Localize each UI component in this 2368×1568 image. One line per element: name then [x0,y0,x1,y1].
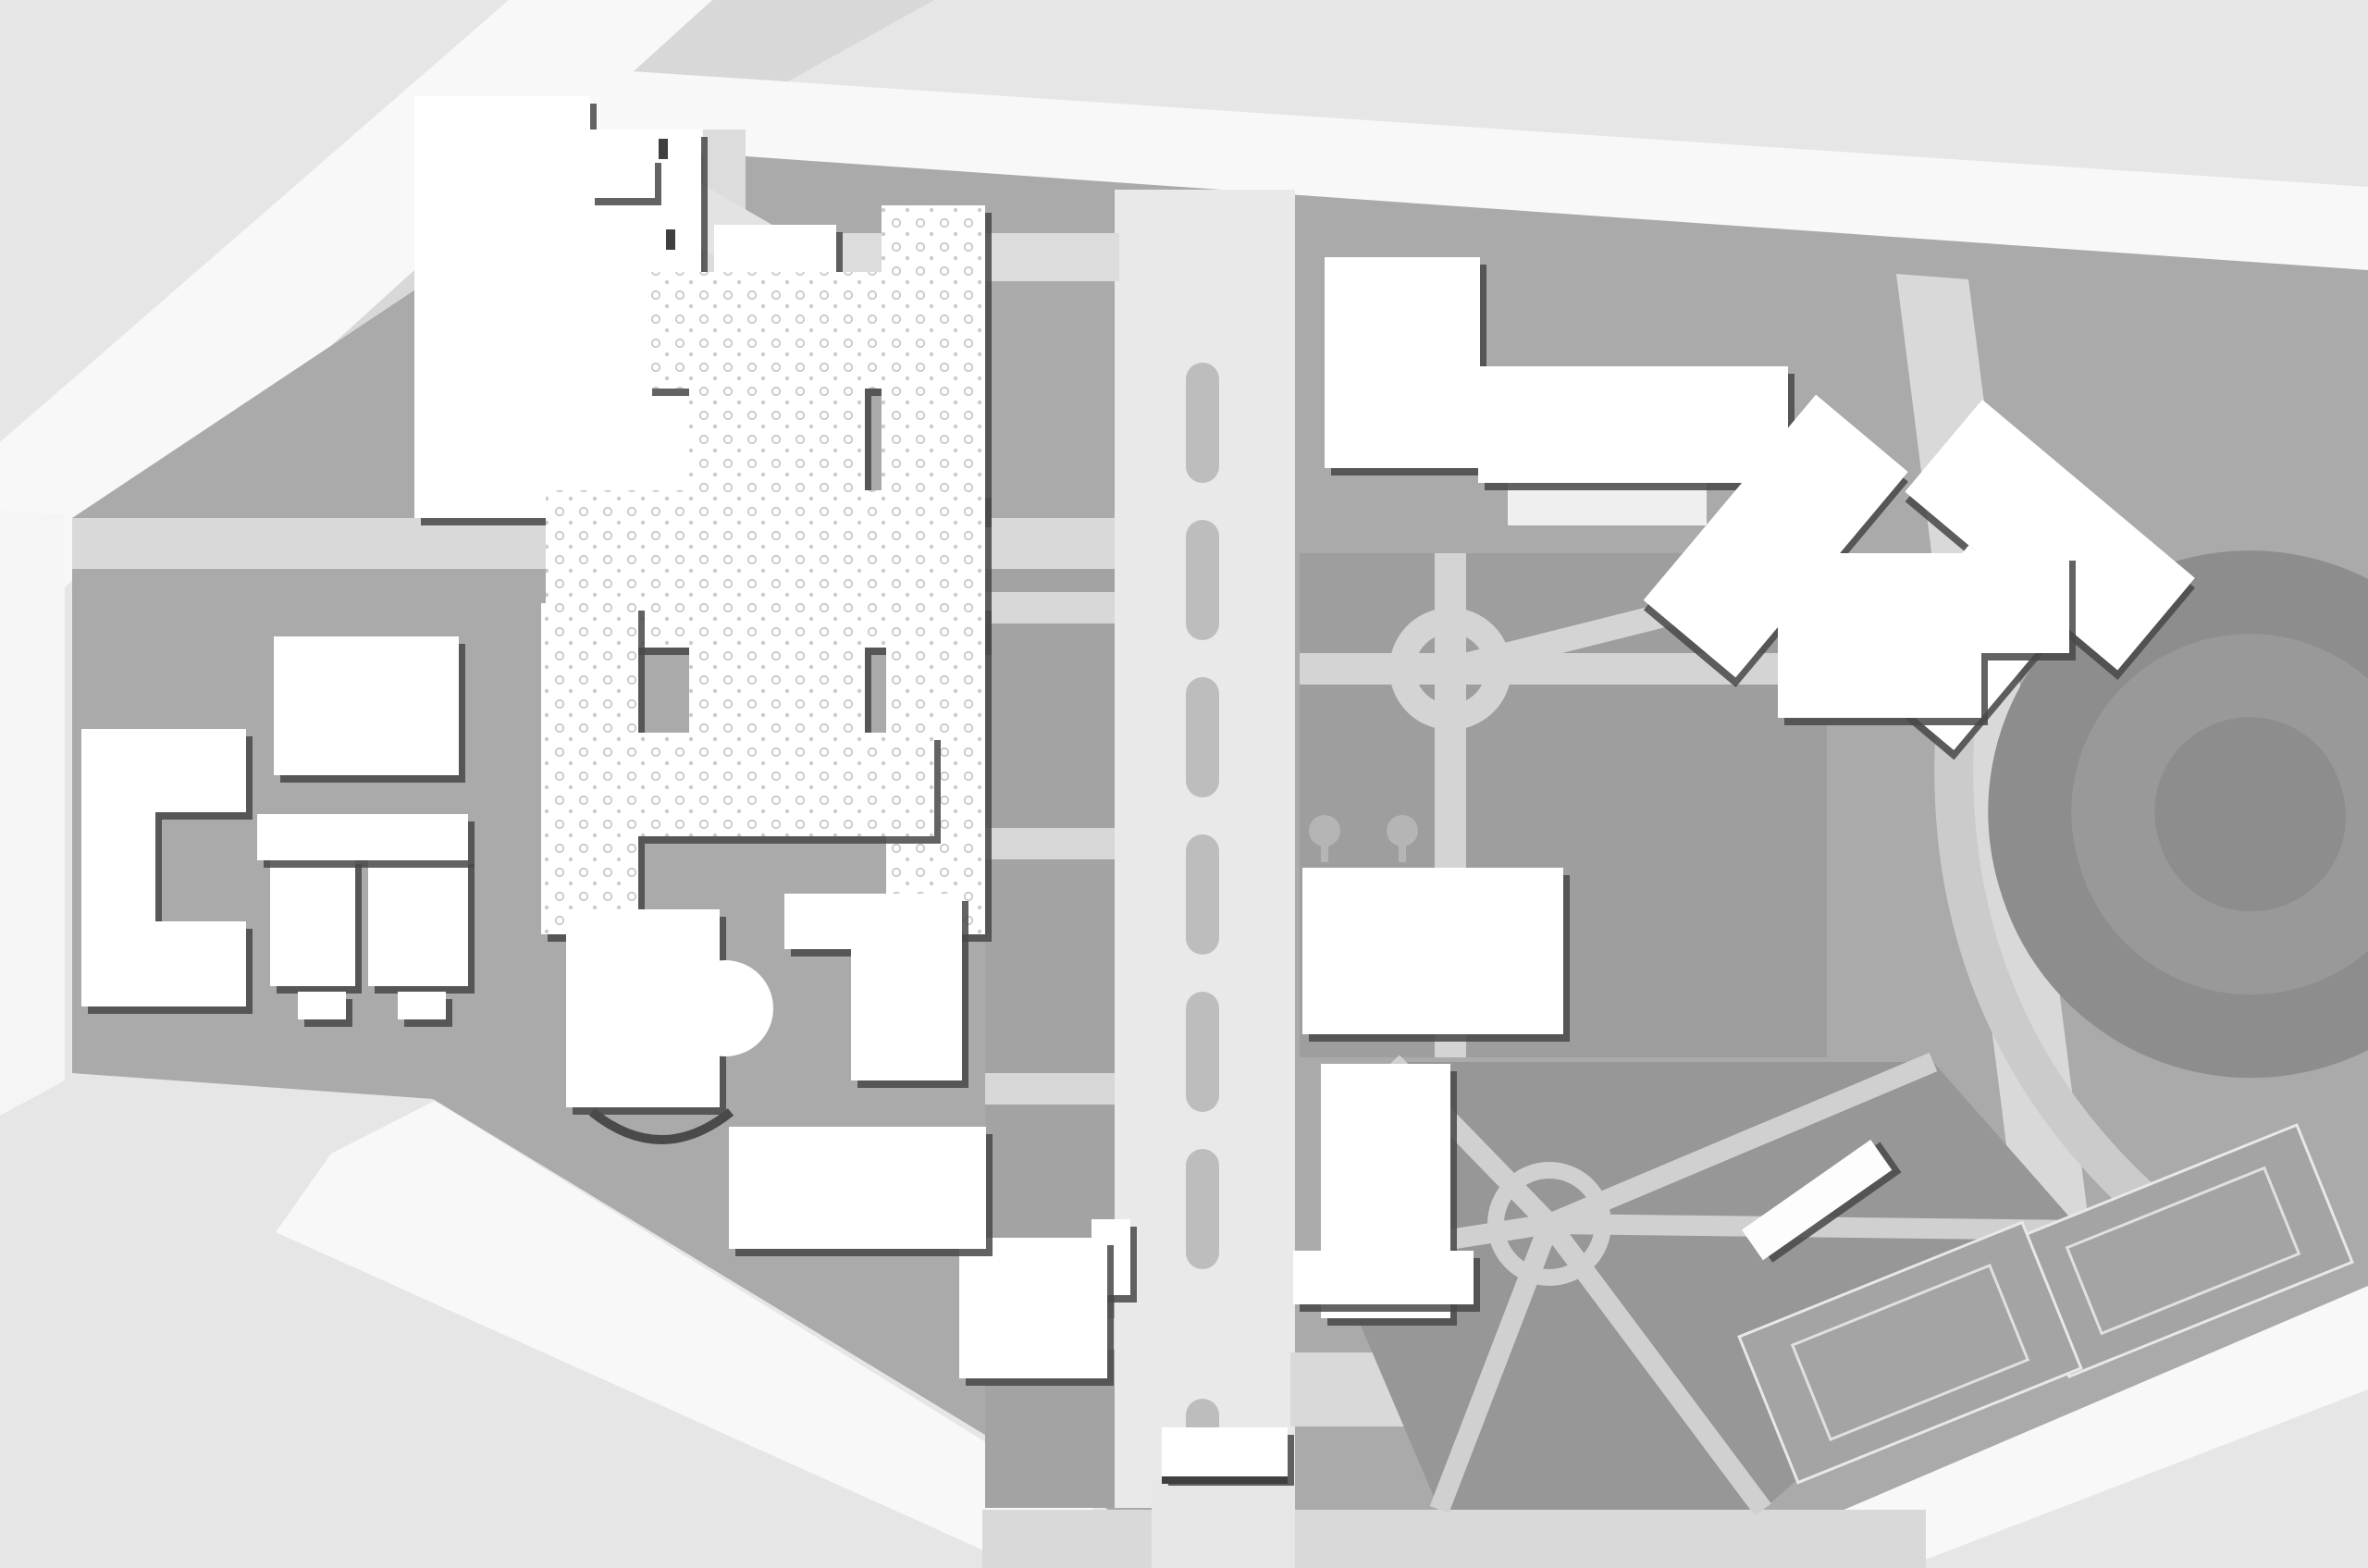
campus-map [0,0,2368,1568]
marker-layer [0,0,2368,1568]
